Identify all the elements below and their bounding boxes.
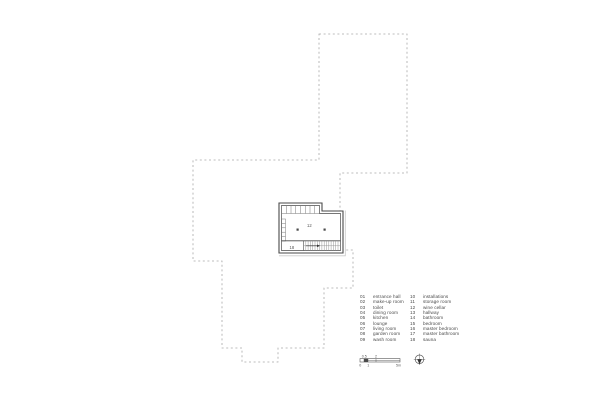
legend-item: 09 wash room bbox=[360, 337, 410, 342]
floor-plan-drawing: 12 18 0.5 2 0 1 5m 01 entrance hall 02 bbox=[0, 0, 600, 400]
legend-column-left: 01 entrance hall 02 make-up room 03 toil… bbox=[360, 294, 410, 342]
plan-svg: 12 18 0.5 2 0 1 5m bbox=[0, 0, 600, 400]
legend-item-number: 18 bbox=[410, 337, 423, 342]
legend-item: 18 sauna bbox=[410, 337, 460, 342]
scale-label: 0.5 bbox=[362, 354, 367, 358]
compass-icon bbox=[414, 354, 425, 365]
scale-label: 5m bbox=[396, 363, 401, 367]
scale-label: 2 bbox=[375, 354, 377, 358]
legend-item-number: 09 bbox=[360, 337, 373, 342]
room-label-main: 12 bbox=[307, 223, 312, 228]
scale-bar: 0.5 2 0 1 5m bbox=[359, 354, 401, 367]
legend-item-label: wash room bbox=[373, 337, 396, 342]
legend-item-label: sauna bbox=[423, 337, 436, 342]
column bbox=[324, 229, 326, 231]
legend-column-right: 10 installations 11 storage room 12 wine… bbox=[410, 294, 460, 342]
scale-bar-filled-segment bbox=[364, 359, 368, 362]
scale-label: 1 bbox=[367, 363, 369, 367]
room-label-lower: 18 bbox=[290, 245, 295, 250]
scale-label: 0 bbox=[359, 363, 361, 367]
column bbox=[297, 229, 299, 231]
room-legend: 01 entrance hall 02 make-up room 03 toil… bbox=[360, 294, 460, 342]
